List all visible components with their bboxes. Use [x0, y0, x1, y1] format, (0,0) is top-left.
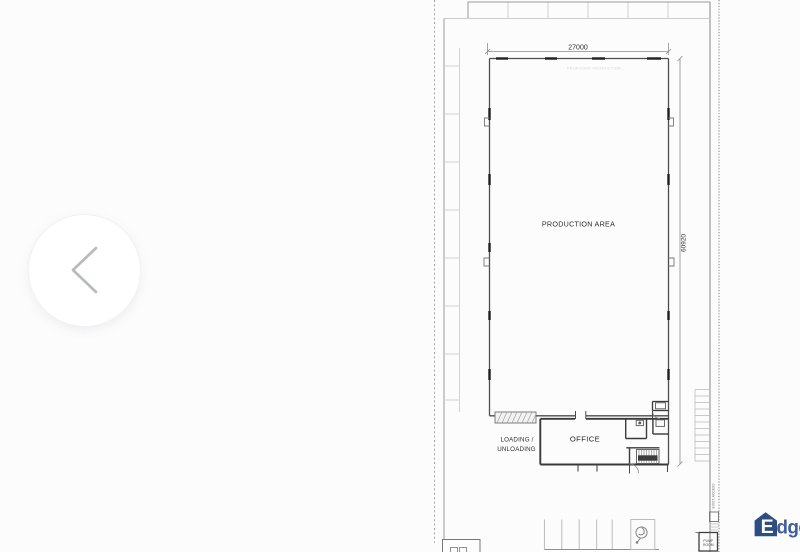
svg-text:27000: 27000 [568, 45, 588, 52]
svg-text:ROOM: ROOM [703, 543, 714, 547]
svg-text:EXIST. ACCESS: EXIST. ACCESS [712, 483, 716, 509]
svg-text:E: E [761, 516, 774, 538]
svg-text:LOADING /: LOADING / [500, 437, 533, 444]
svg-text:OFFICE: OFFICE [570, 435, 600, 444]
svg-text:dge: dge [776, 517, 800, 538]
svg-text:PRODUCTION AREA: PRODUCTION AREA [542, 220, 615, 229]
svg-text:PUMP: PUMP [703, 539, 714, 543]
svg-text:PROPOSED PRODUCTION: PROPOSED PRODUCTION [567, 66, 621, 71]
svg-text:60920: 60920 [681, 234, 688, 252]
svg-text:UNLOADING: UNLOADING [497, 446, 536, 453]
